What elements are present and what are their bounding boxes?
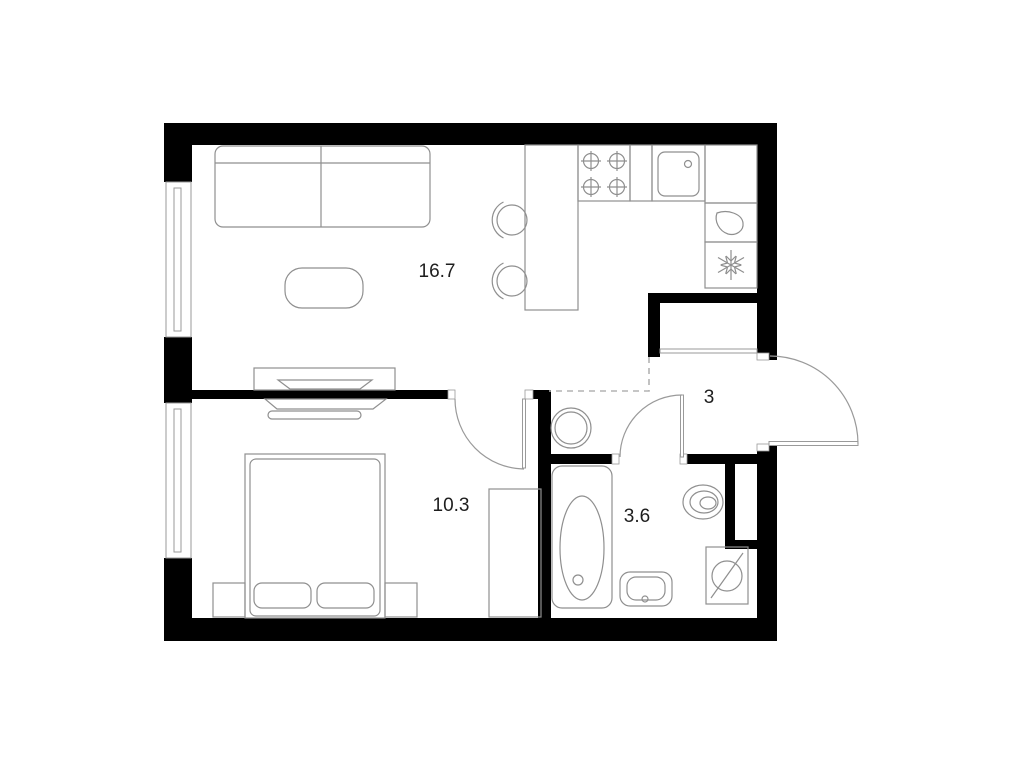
tv-unit-living [254, 368, 395, 390]
bedroom-door [448, 390, 533, 469]
wall-toilet-shaft-jog [725, 540, 757, 549]
bar-chair-1 [492, 202, 527, 238]
water-heater-box [705, 203, 757, 242]
entrance-door [757, 353, 858, 451]
window-living-room [166, 182, 191, 337]
window-frame [166, 182, 191, 337]
washing-machine [706, 547, 748, 604]
door-leaf [769, 442, 858, 446]
door-jamb [612, 454, 619, 464]
room-label-hallway: 3 [704, 387, 715, 408]
room-label-bathroom: 3.6 [624, 506, 650, 527]
pillow-right [317, 583, 374, 608]
boiler-outer [551, 408, 591, 448]
kitchen-peninsula-counter [525, 145, 578, 310]
wall-closet-niche-left [648, 293, 660, 357]
boiler [551, 408, 591, 448]
floor-plan: 16.7 10.3 3.6 3 [0, 0, 1024, 768]
wall-left-pier-bottom [164, 558, 192, 641]
door-swing-arc [455, 399, 524, 469]
sofa-body [215, 146, 430, 227]
bathtub-basin [560, 496, 604, 600]
door-swing-arc [620, 395, 682, 457]
wall-bathroom-top-left [551, 454, 612, 464]
bathtub [552, 466, 612, 608]
wall-toilet-shaft-stub [725, 464, 735, 540]
fridge [705, 242, 757, 288]
tv-bedroom [265, 399, 386, 419]
bathroom-sink [620, 572, 672, 606]
door-leaf [523, 399, 526, 468]
wall-right-upper [757, 123, 777, 360]
door-jamb [448, 390, 455, 399]
wall-left-pier-mid [164, 337, 192, 403]
stove [578, 145, 630, 201]
wall-bedroom-bathroom [538, 396, 551, 618]
room-label-living-kitchen: 16.7 [419, 261, 456, 282]
door-jamb [525, 390, 533, 399]
tv-bedroom-stand [268, 411, 361, 419]
wall-bathroom-top-right [687, 454, 757, 464]
counter-cell [705, 145, 757, 203]
toilet [683, 485, 723, 519]
chair-seat [497, 266, 527, 296]
wall-bottom [164, 618, 777, 641]
wall-left-pier-top [164, 123, 192, 182]
chair-back [492, 202, 503, 238]
wall-closet-niche-top [648, 293, 757, 303]
kitchen-sink [652, 145, 705, 201]
counter-strip [630, 145, 652, 201]
coffee-table [285, 268, 363, 308]
bar-chair-2 [492, 263, 527, 299]
chair-seat [497, 205, 527, 235]
water-heater [705, 203, 757, 242]
closet-niche-front [660, 349, 757, 353]
zone-divider-dashed [549, 357, 649, 391]
tv-console [254, 368, 395, 390]
floor-plan-canvas: 16.7 10.3 3.6 3 [0, 0, 1024, 768]
nightstand-right [385, 583, 417, 617]
wardrobe-bedroom [489, 489, 541, 617]
bed-mattress [250, 459, 380, 616]
door-jamb [757, 444, 769, 451]
sink-basin [658, 152, 699, 196]
sofa [215, 146, 430, 227]
bathtub-drain [573, 575, 583, 585]
bathroom-door [612, 395, 687, 464]
pillow-left [254, 583, 311, 608]
boiler-inner [555, 412, 587, 444]
window-glass [174, 188, 181, 331]
toilet-bowl [690, 491, 718, 513]
sink-tap-hole [642, 596, 648, 602]
door-swing-arc [770, 356, 858, 444]
bed-frame [245, 454, 385, 618]
window-frame [166, 403, 191, 558]
snowflake-icon [716, 250, 747, 280]
kitchen [492, 145, 757, 310]
window-bedroom [166, 403, 191, 558]
toilet-inner [700, 497, 716, 509]
room-label-bedroom: 10.3 [433, 495, 470, 516]
window-glass [174, 409, 181, 552]
nightstand-left [213, 583, 245, 617]
toilet-rim [683, 485, 723, 519]
four-burners-icon [581, 151, 627, 197]
door-jamb [757, 353, 769, 360]
sink-tap-hole [685, 161, 692, 168]
wall-right-lower [757, 444, 777, 641]
chair-back [492, 263, 503, 299]
water-drop-icon [716, 212, 743, 235]
wall-living-bedroom [192, 390, 448, 399]
bed [245, 454, 385, 618]
wall-top [164, 123, 777, 145]
tv-bedroom-icon [265, 399, 386, 409]
door-leaf [681, 395, 684, 457]
tv-living-icon [278, 380, 372, 389]
